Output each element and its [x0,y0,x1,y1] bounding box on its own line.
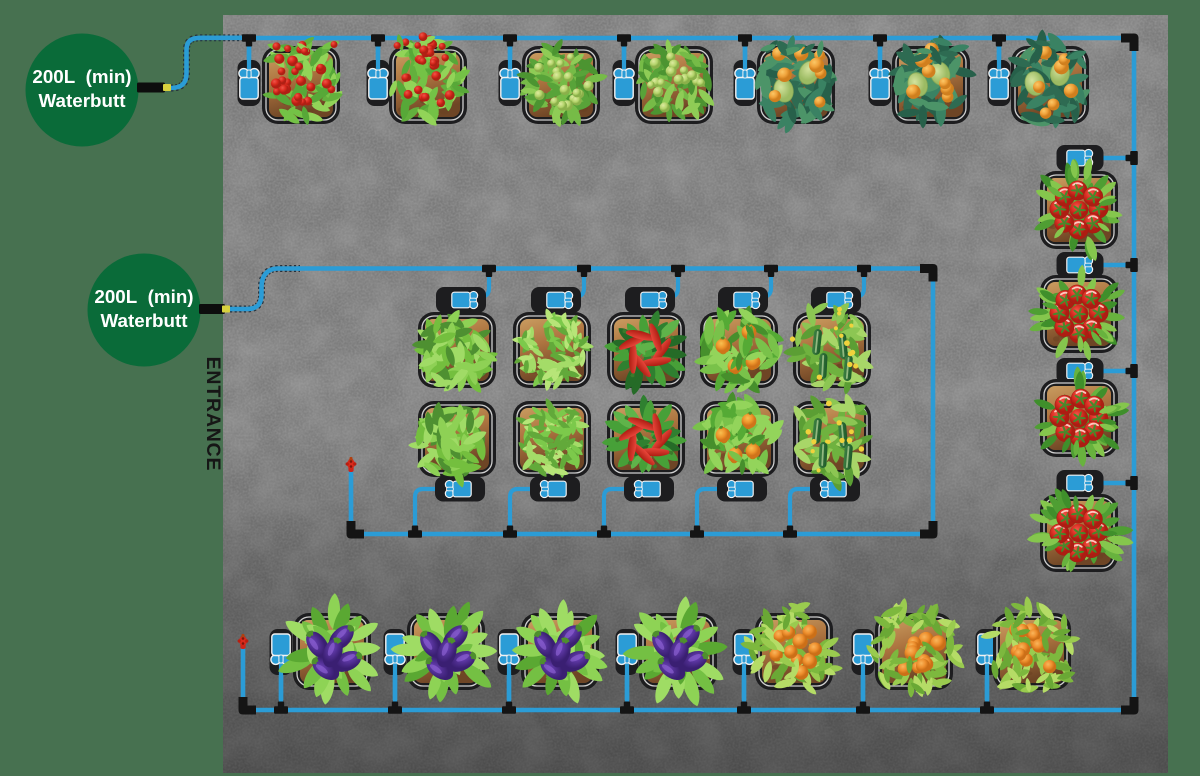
svg-text:ENTRANCE: ENTRANCE [202,357,224,472]
svg-text:200L (min): 200L (min) [32,66,131,87]
svg-text:Waterbutt: Waterbutt [101,310,189,331]
svg-text:200L (min): 200L (min) [94,286,193,307]
svg-text:Waterbutt: Waterbutt [39,90,127,111]
